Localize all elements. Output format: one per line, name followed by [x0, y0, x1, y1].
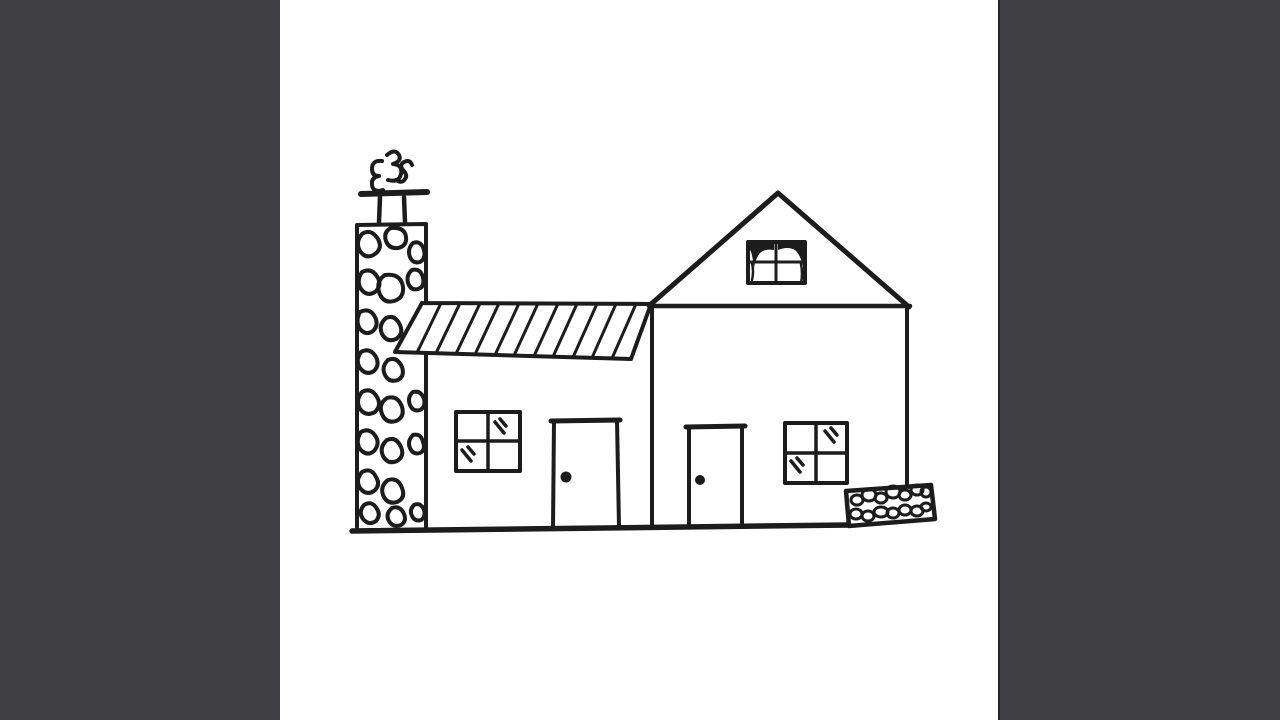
- left-window: four-pane window with glass shine marks: [456, 412, 520, 471]
- letterbox-right-bar: [998, 0, 1280, 720]
- sketch-canvas: stone chimney with flue and cap: [280, 0, 1000, 720]
- right-doorknob: [695, 475, 705, 485]
- chimney: stone chimney with flue and cap: [357, 192, 427, 528]
- letterbox-left-bar: [0, 0, 280, 720]
- chimney-flue: [379, 197, 405, 222]
- smoke-icon: three curly smoke puffs: [372, 152, 412, 191]
- stone-bed: low bed filled with pebbles: [846, 485, 935, 526]
- attic-window: attic window with dark curtains: [748, 242, 805, 283]
- video-frame: stone chimney with flue and cap: [0, 0, 1280, 720]
- left-doorknob: [561, 472, 572, 483]
- chimney-cap: [361, 192, 427, 194]
- left-door: door with round knob: [551, 420, 620, 527]
- awning-roof: slanted awning roof with diagonal hatchi…: [395, 303, 651, 359]
- right-door: door with round knob: [686, 426, 745, 526]
- right-window: four-pane window with glass shine marks: [785, 423, 847, 483]
